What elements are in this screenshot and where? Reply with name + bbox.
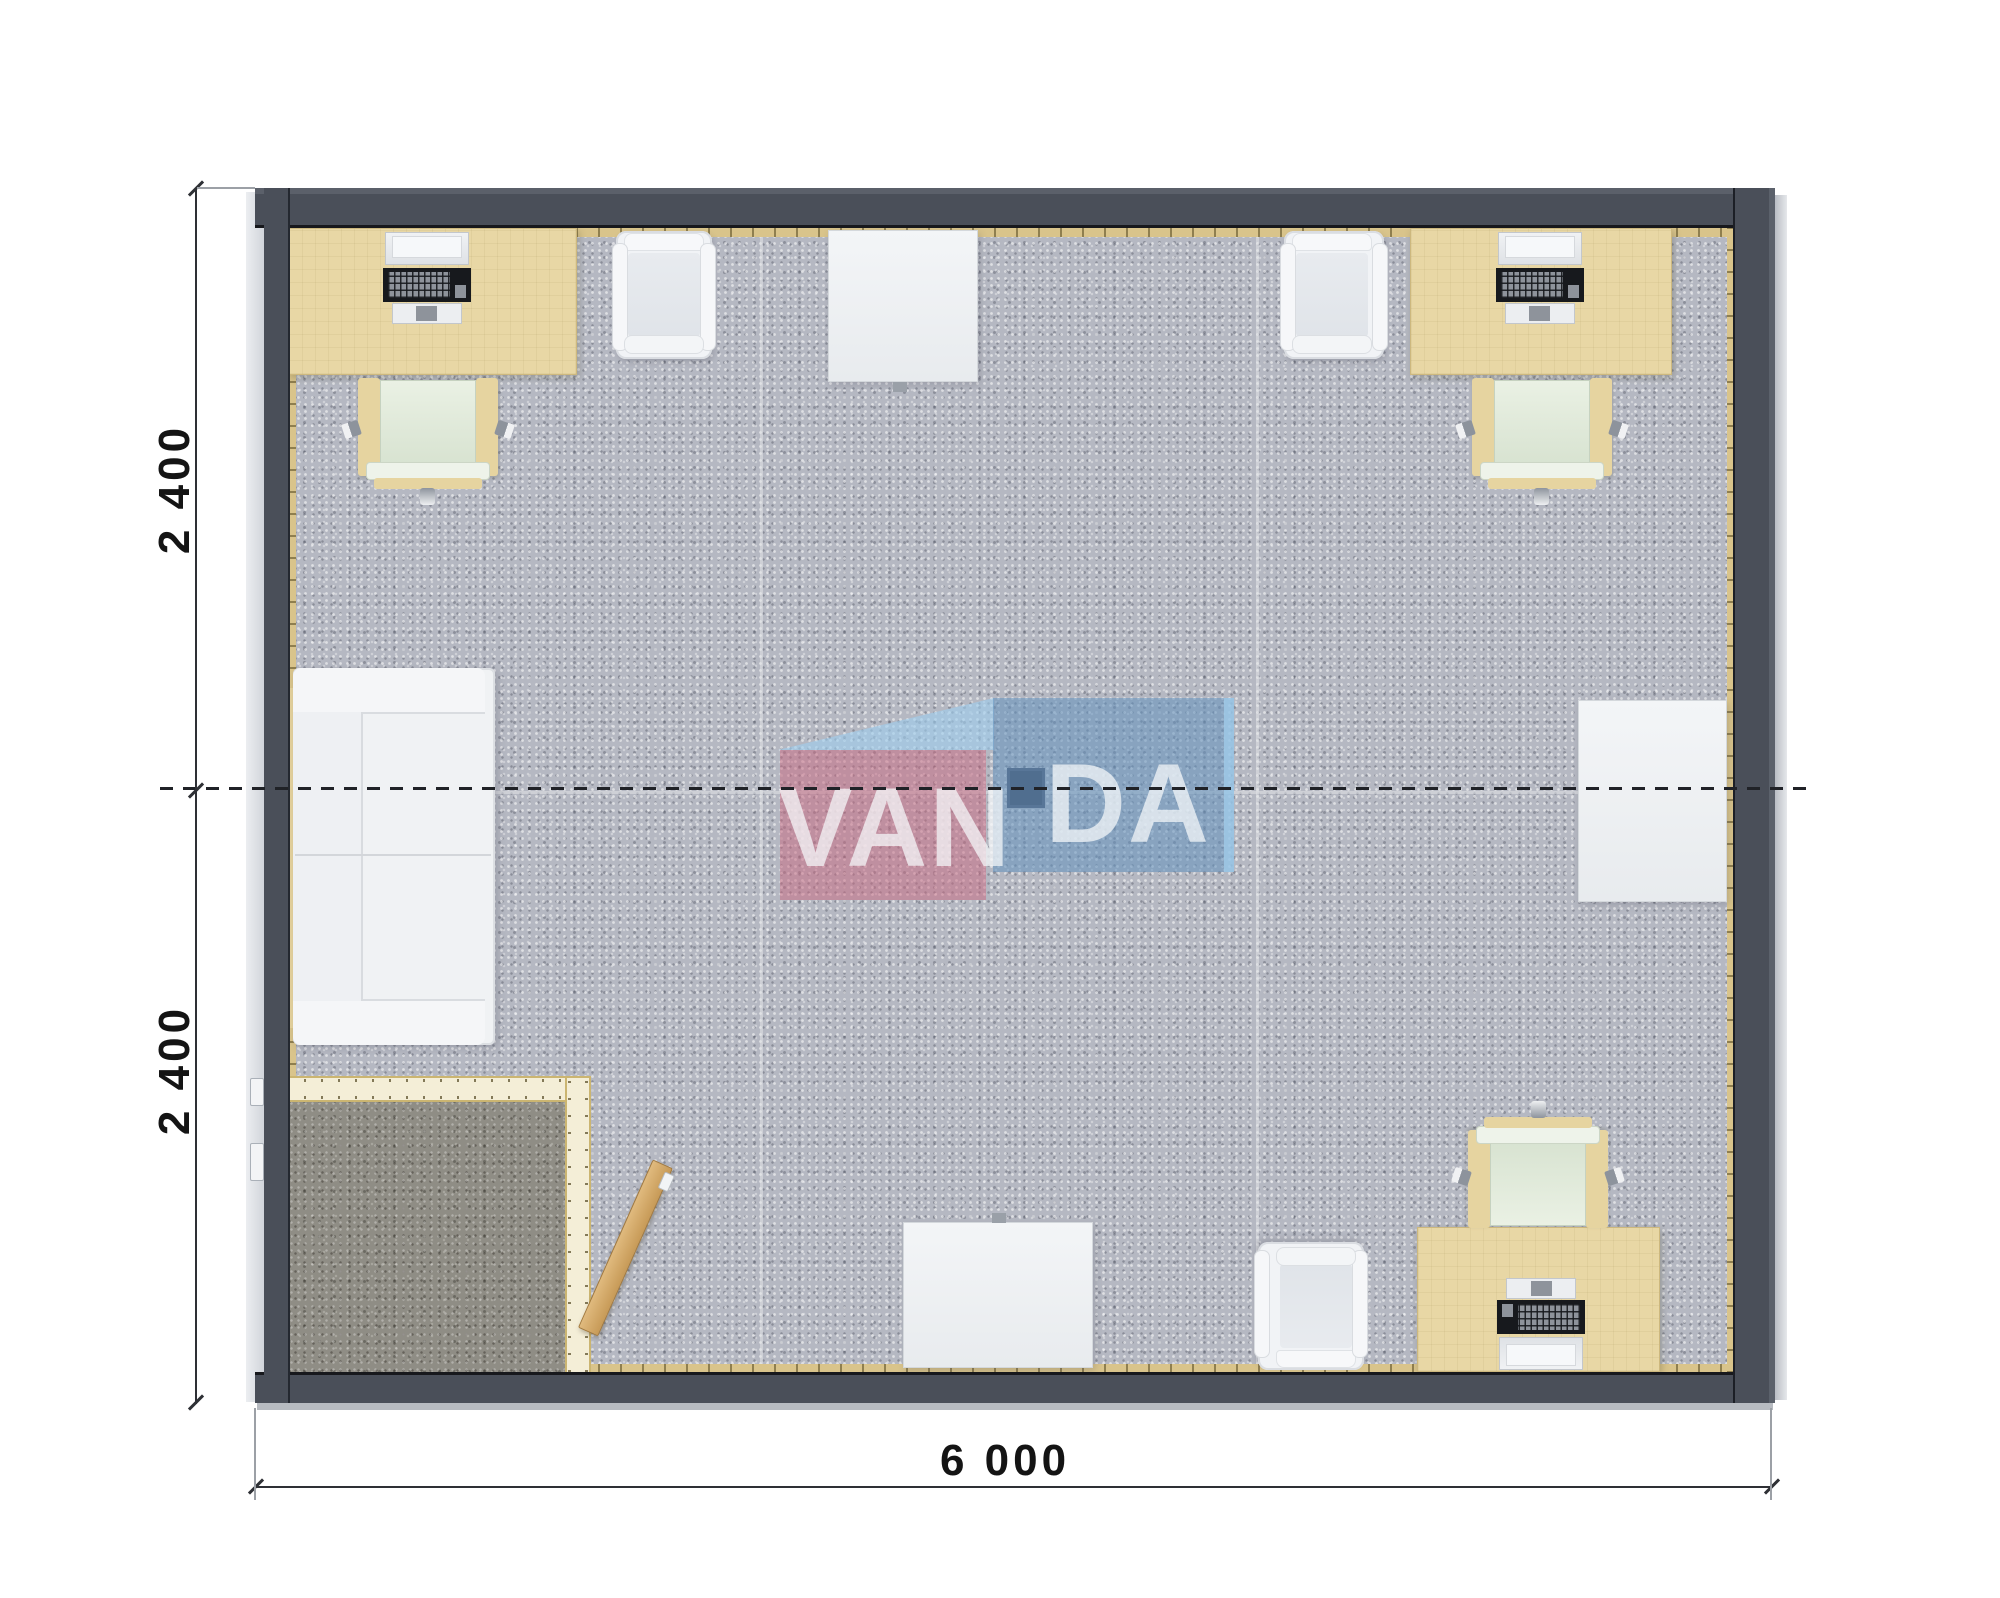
extension-line-top-left bbox=[197, 187, 255, 189]
floor-plan-canvas: VAN DA 2 400 2 400 6 000 bbox=[0, 0, 2000, 1598]
screen-icon bbox=[392, 236, 462, 258]
building-wall-right bbox=[1733, 188, 1775, 1403]
extension-line-bottom-left bbox=[254, 1408, 256, 1500]
chair-rail-icon bbox=[1586, 1130, 1608, 1228]
office-chair-top-left bbox=[358, 378, 498, 490]
dimension-label-left-bottom: 2 400 bbox=[152, 985, 198, 1155]
mouse-icon bbox=[1502, 1304, 1513, 1317]
partition-wall-top bbox=[285, 1076, 591, 1102]
cpu-button-icon bbox=[1531, 1281, 1552, 1296]
table-top-center bbox=[828, 230, 978, 382]
right-wall-exterior-face bbox=[1775, 195, 1787, 1400]
keyboard-keys-icon bbox=[1501, 272, 1563, 298]
cpu-button-icon bbox=[1529, 306, 1550, 321]
table-bottom-center bbox=[903, 1222, 1093, 1368]
chair-caster-icon bbox=[420, 488, 435, 505]
armchair-armrest-icon bbox=[1352, 1250, 1368, 1358]
extension-line-bottom-right bbox=[1770, 1408, 1772, 1500]
armchair-armrest-icon bbox=[612, 243, 628, 351]
chair-seat-icon bbox=[1490, 1142, 1586, 1226]
sofa-backrest-icon bbox=[293, 712, 363, 1001]
module-centerline-dashed bbox=[160, 787, 1808, 790]
armchair-armrest-icon bbox=[1372, 243, 1388, 351]
office-chair-bottom-right bbox=[1468, 1116, 1608, 1228]
chair-caster-icon bbox=[1534, 488, 1549, 505]
armchair-armrest-icon bbox=[1254, 1250, 1270, 1358]
chair-base-icon bbox=[1484, 1117, 1592, 1128]
armchair-seat-icon bbox=[628, 253, 700, 337]
armchair-seat-icon bbox=[1296, 253, 1368, 337]
exterior-door-handle-icon bbox=[250, 1143, 264, 1181]
storage-room-floor bbox=[288, 1100, 565, 1372]
armchair-back-icon bbox=[1292, 233, 1372, 251]
carpet-seam-vertical-2 bbox=[1256, 237, 1259, 1364]
dimension-label-bottom: 6 000 bbox=[910, 1438, 1100, 1484]
sofa-seam bbox=[295, 854, 491, 856]
chair-caster-icon bbox=[1531, 1101, 1546, 1118]
bottom-wall-exterior-face bbox=[257, 1403, 1773, 1410]
chair-seat-icon bbox=[1494, 380, 1590, 464]
sofa bbox=[285, 668, 495, 1045]
cpu-button-icon bbox=[416, 306, 437, 321]
mouse-icon bbox=[455, 285, 466, 298]
mouse-icon bbox=[1568, 285, 1579, 298]
office-chair-top-right bbox=[1472, 378, 1612, 490]
keyboard-keys-icon bbox=[1518, 1304, 1580, 1330]
armchair-front-icon bbox=[624, 335, 704, 354]
armchair-top-2 bbox=[1284, 231, 1384, 359]
dimension-line-bottom bbox=[255, 1486, 1772, 1488]
keyboard-keys-icon bbox=[388, 272, 450, 298]
carpet-seam-vertical-1 bbox=[760, 237, 763, 1364]
armchair-top-1 bbox=[616, 231, 712, 359]
chair-back-icon bbox=[1476, 1126, 1600, 1144]
vanda-watermark: VAN DA bbox=[778, 696, 1236, 904]
watermark-letters-da: DA bbox=[1030, 748, 1226, 860]
table-leg-icon bbox=[893, 382, 907, 392]
armchair-back-icon bbox=[624, 233, 704, 251]
computer-bottom-right bbox=[1497, 1278, 1585, 1370]
chair-seat-icon bbox=[380, 380, 476, 464]
dimension-line-vertical bbox=[195, 188, 197, 1404]
building-wall-left bbox=[264, 188, 290, 1403]
armchair-bottom bbox=[1258, 1242, 1364, 1370]
exterior-door-hinge-icon bbox=[250, 1078, 264, 1106]
armchair-armrest-icon bbox=[700, 243, 716, 351]
screen-icon bbox=[1506, 1344, 1576, 1366]
armchair-armrest-icon bbox=[1280, 243, 1296, 351]
building-wall-top bbox=[255, 188, 1775, 228]
building-wall-bottom bbox=[255, 1372, 1775, 1403]
armchair-back-icon bbox=[1276, 1350, 1356, 1368]
table-leg-icon bbox=[992, 1213, 1006, 1223]
armchair-front-icon bbox=[1276, 1247, 1356, 1266]
watermark-top-flap bbox=[778, 698, 994, 750]
armchair-front-icon bbox=[1292, 335, 1372, 354]
screen-icon bbox=[1505, 236, 1575, 258]
chair-rail-icon bbox=[1468, 1130, 1490, 1228]
armchair-seat-icon bbox=[1280, 1264, 1352, 1348]
sofa-armrest-icon bbox=[293, 999, 485, 1045]
table-right-wall bbox=[1578, 700, 1727, 902]
computer-top-left bbox=[383, 232, 471, 324]
dimension-label-left-top: 2 400 bbox=[152, 404, 198, 574]
sofa-armrest-icon bbox=[293, 668, 485, 714]
computer-top-right bbox=[1496, 232, 1584, 324]
